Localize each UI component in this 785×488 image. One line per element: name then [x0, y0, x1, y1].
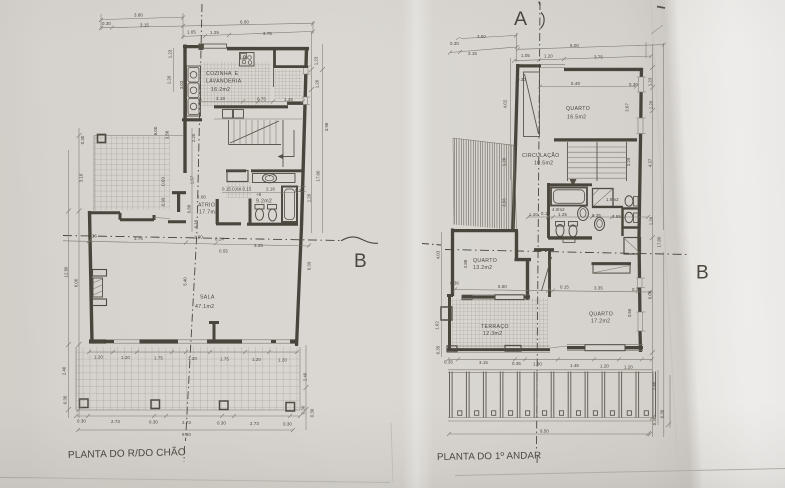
- svg-text:1.23: 1.23: [168, 49, 173, 58]
- svg-text:3.35: 3.35: [594, 286, 603, 291]
- svg-text:3.75: 3.75: [263, 31, 272, 36]
- svg-text:0.15: 0.15: [560, 285, 569, 290]
- svg-text:1.23: 1.23: [648, 77, 653, 86]
- svg-text:LAVANDERIA: LAVANDERIA: [206, 79, 242, 85]
- svg-text:0.30: 0.30: [517, 77, 526, 82]
- svg-text:3.98: 3.98: [324, 122, 329, 131]
- svg-text:1.20: 1.20: [544, 54, 553, 59]
- svg-text:3.15: 3.15: [479, 360, 488, 365]
- svg-text:1.20: 1.20: [624, 364, 633, 369]
- svg-text:1.20: 1.20: [94, 355, 103, 360]
- svg-text:1.75: 1.75: [220, 357, 229, 362]
- svg-text:6.00: 6.00: [648, 290, 653, 299]
- svg-text:9.50: 9.50: [540, 429, 549, 434]
- svg-text:1.20: 1.20: [529, 212, 538, 217]
- svg-text:0.30: 0.30: [102, 21, 111, 26]
- svg-text:1.05: 1.05: [187, 30, 196, 35]
- svg-text:3.58: 3.58: [165, 130, 170, 139]
- svg-text:2.40: 2.40: [62, 366, 67, 375]
- svg-text:1.9m2: 1.9m2: [606, 197, 619, 202]
- svg-text:12.50: 12.50: [64, 266, 69, 278]
- svg-text:3.19: 3.19: [216, 96, 225, 101]
- svg-text:0.30: 0.30: [450, 41, 459, 46]
- svg-text:0.35: 0.35: [444, 359, 453, 364]
- svg-text:1.20: 1.20: [307, 193, 312, 202]
- svg-text:0.15 0.84 0.15: 0.15 0.84 0.15: [222, 187, 252, 192]
- svg-text:1.20: 1.20: [649, 100, 654, 109]
- svg-text:TERRAÇO: TERRAÇO: [481, 324, 509, 330]
- svg-text:3.25: 3.25: [254, 243, 263, 248]
- svg-text:0.88: 0.88: [187, 204, 192, 213]
- svg-text:2.40: 2.40: [652, 381, 657, 390]
- svg-text:0.36: 0.36: [450, 281, 459, 286]
- svg-text:0.30: 0.30: [310, 408, 315, 417]
- svg-text:12.3m2: 12.3m2: [483, 331, 502, 337]
- svg-text:1.05: 1.05: [521, 53, 530, 58]
- svg-text:17.00: 17.00: [316, 170, 321, 182]
- svg-text:3.56: 3.56: [627, 308, 632, 317]
- svg-text:2.00: 2.00: [197, 195, 206, 200]
- svg-text:3.75: 3.75: [594, 54, 603, 59]
- svg-text:1.20: 1.20: [315, 79, 320, 88]
- svg-text:0.30: 0.30: [283, 422, 292, 427]
- svg-text:4.02: 4.02: [503, 99, 508, 108]
- svg-text:PLANTA DO 1º ANDAR: PLANTA DO 1º ANDAR: [437, 450, 541, 463]
- svg-text:1.20: 1.20: [167, 75, 172, 84]
- svg-text:0.30: 0.30: [77, 419, 86, 424]
- svg-text:COZINHA E: COZINHA E: [206, 71, 239, 77]
- svg-text:3.80: 3.80: [134, 13, 143, 18]
- svg-text:0.30: 0.30: [632, 287, 641, 292]
- svg-text:3.15: 3.15: [468, 51, 477, 56]
- svg-text:3.16: 3.16: [79, 173, 84, 182]
- svg-text:3.76: 3.76: [134, 236, 143, 241]
- svg-text:2.40: 2.40: [303, 372, 308, 381]
- svg-text:0.30: 0.30: [660, 409, 665, 418]
- svg-text:9.50: 9.50: [182, 432, 191, 437]
- svg-text:0.35: 0.35: [436, 345, 441, 354]
- svg-text:0.30: 0.30: [301, 405, 306, 414]
- svg-text:17.2m2: 17.2m2: [591, 319, 610, 325]
- svg-text:SALA: SALA: [200, 295, 215, 301]
- svg-text:5.40: 5.40: [183, 277, 188, 286]
- svg-text:1.75: 1.75: [154, 356, 163, 361]
- svg-text:0.30: 0.30: [217, 421, 226, 426]
- svg-text:2.18: 2.18: [266, 187, 275, 192]
- svg-text:2.73: 2.73: [250, 421, 259, 426]
- svg-text:1.55: 1.55: [612, 214, 621, 219]
- svg-text:13.2m2: 13.2m2: [473, 265, 492, 271]
- svg-text:6.00: 6.00: [74, 278, 79, 287]
- svg-text:2.88: 2.88: [463, 259, 468, 268]
- svg-text:1.45: 1.45: [284, 97, 293, 102]
- svg-text:1.29: 1.29: [210, 30, 219, 35]
- svg-text:ATRIO: ATRIO: [198, 203, 215, 209]
- svg-text:4.37: 4.37: [648, 158, 653, 167]
- svg-text:0.30: 0.30: [63, 395, 68, 404]
- svg-text:QUARTO: QUARTO: [589, 312, 613, 318]
- svg-text:3.07: 3.07: [625, 103, 630, 112]
- svg-text:1.80: 1.80: [533, 362, 542, 367]
- svg-text:6.39: 6.39: [307, 261, 312, 270]
- svg-text:8.00: 8.00: [153, 126, 158, 135]
- svg-text:17.7m2: 17.7m2: [199, 210, 218, 216]
- svg-text:0.30: 0.30: [80, 135, 85, 144]
- svg-text:3.03: 3.03: [179, 80, 184, 89]
- svg-text:3.56: 3.56: [502, 198, 507, 207]
- svg-text:0.15: 0.15: [541, 211, 550, 216]
- svg-text:1.45: 1.45: [570, 363, 579, 368]
- svg-text:1.20: 1.20: [252, 357, 261, 362]
- svg-text:2.73: 2.73: [111, 419, 120, 424]
- svg-text:1.20: 1.20: [649, 216, 654, 225]
- svg-text:6.00: 6.00: [240, 20, 249, 25]
- svg-text:16.5m2: 16.5m2: [567, 115, 586, 121]
- svg-text:9.2m2: 9.2m2: [256, 199, 272, 205]
- svg-text:3.15: 3.15: [140, 23, 149, 28]
- svg-text:0.24: 0.24: [215, 237, 224, 242]
- svg-text:2.73: 2.73: [182, 420, 191, 425]
- svg-text:1.20: 1.20: [188, 356, 197, 361]
- svg-text:0.30: 0.30: [652, 416, 657, 425]
- svg-text:0.09: 0.09: [161, 177, 166, 186]
- svg-text:0.15: 0.15: [194, 219, 199, 228]
- svg-text:QUARTO: QUARTO: [473, 258, 497, 264]
- svg-text:2.29: 2.29: [626, 157, 631, 166]
- svg-text:17.00: 17.00: [657, 236, 662, 248]
- svg-text:B: B: [696, 263, 709, 284]
- svg-text:5.50: 5.50: [498, 284, 507, 289]
- svg-text:1.20: 1.20: [121, 355, 130, 360]
- svg-text:B: B: [354, 251, 367, 272]
- svg-text:QUARTO: QUARTO: [566, 106, 590, 112]
- svg-text:0.55: 0.55: [219, 249, 228, 254]
- svg-text:4.03: 4.03: [436, 250, 441, 259]
- svg-text:0.35: 0.35: [592, 213, 601, 218]
- svg-text:5.49: 5.49: [571, 81, 580, 86]
- svg-text:0.30: 0.30: [149, 420, 158, 425]
- svg-text:CIRCULAÇÃO: CIRCULAÇÃO: [522, 152, 560, 159]
- svg-text:A: A: [514, 8, 527, 30]
- svg-text:0.75: 0.75: [257, 96, 266, 101]
- svg-text:0.35: 0.35: [512, 361, 521, 366]
- svg-text:47.1m2: 47.1m2: [195, 304, 214, 310]
- svg-text:6.00: 6.00: [570, 43, 579, 48]
- svg-text:3.50: 3.50: [477, 34, 486, 39]
- svg-text:0.36: 0.36: [88, 234, 97, 239]
- svg-text:0.99: 0.99: [161, 197, 166, 206]
- svg-text:1.90: 1.90: [194, 235, 203, 240]
- svg-text:1.25: 1.25: [558, 212, 567, 217]
- svg-text:0.30: 0.30: [629, 82, 638, 87]
- svg-text:10.5m2: 10.5m2: [534, 161, 553, 167]
- svg-text:1.62: 1.62: [435, 321, 440, 330]
- svg-text:1.20: 1.20: [278, 358, 287, 363]
- svg-text:1.23: 1.23: [314, 56, 319, 65]
- svg-text:1.20: 1.20: [600, 364, 609, 369]
- svg-text:1.20: 1.20: [502, 157, 507, 166]
- svg-text:16.2m2: 16.2m2: [211, 87, 230, 93]
